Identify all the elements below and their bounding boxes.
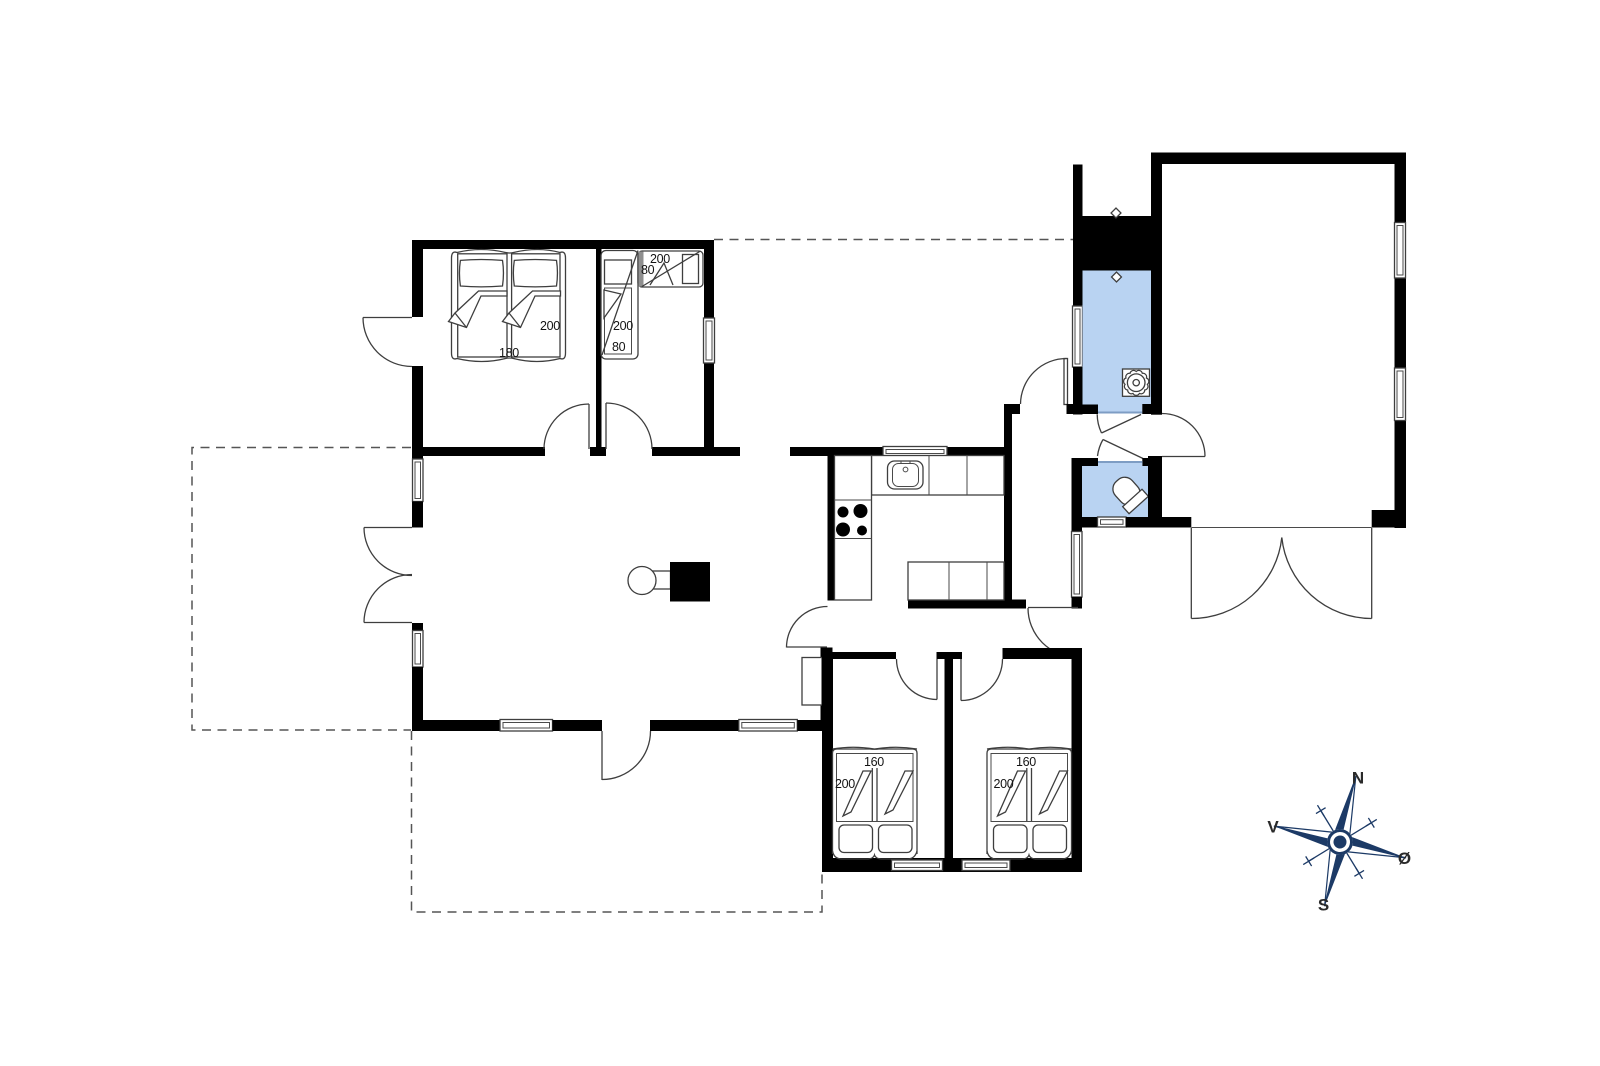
svg-text:200: 200	[613, 319, 633, 333]
svg-text:80: 80	[612, 340, 626, 354]
svg-text:N: N	[1352, 769, 1364, 788]
svg-text:160: 160	[1016, 755, 1036, 769]
svg-text:V: V	[1267, 818, 1279, 837]
svg-text:200: 200	[835, 777, 855, 791]
svg-text:80: 80	[641, 263, 655, 277]
svg-text:S: S	[1318, 896, 1329, 915]
svg-text:200: 200	[540, 319, 560, 333]
svg-text:200: 200	[994, 777, 1014, 791]
svg-text:160: 160	[864, 755, 884, 769]
svg-text:Ø: Ø	[1398, 849, 1411, 868]
svg-text:180: 180	[499, 346, 519, 360]
